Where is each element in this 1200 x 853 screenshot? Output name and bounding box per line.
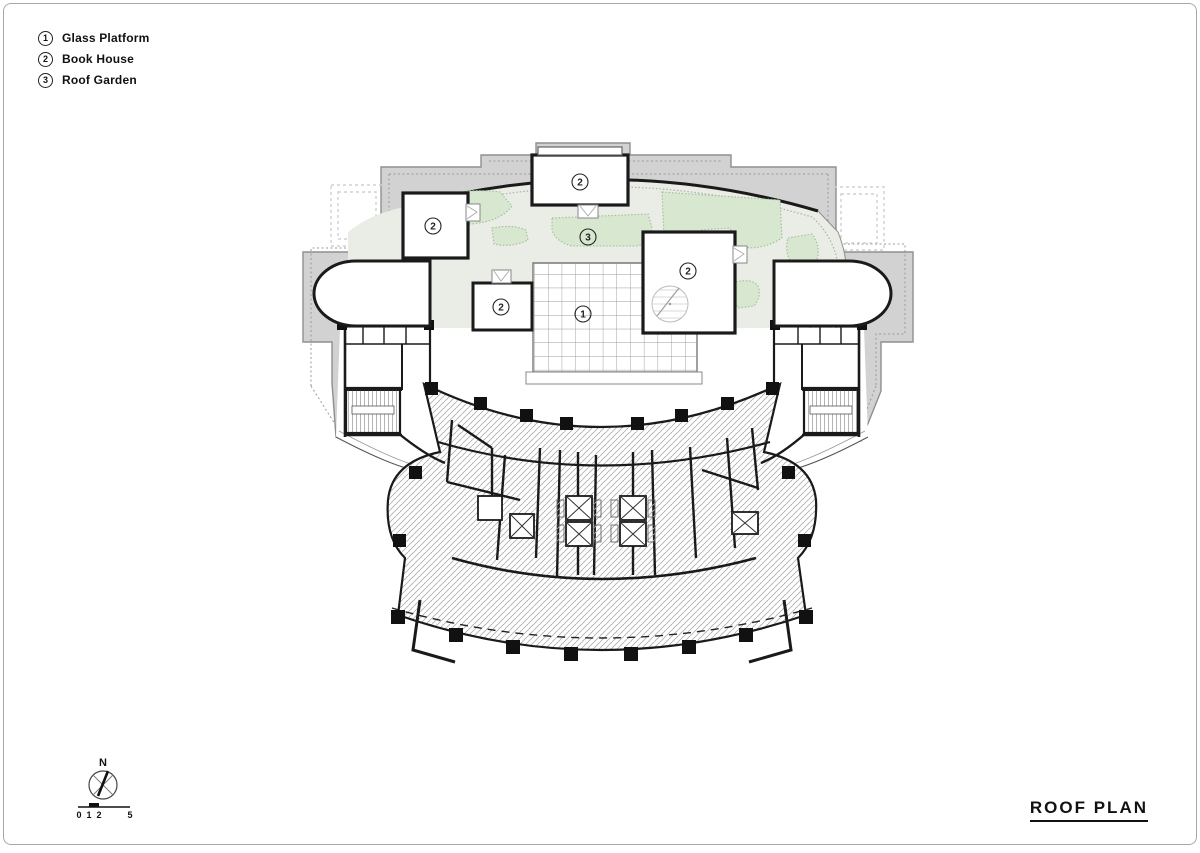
scale-tick-1: 1	[86, 810, 91, 820]
scale-bar: 0 1 2 5	[76, 803, 132, 820]
roof-plan-sheet: { "page": { "title": "ROOF PLAN" }, "leg…	[0, 0, 1200, 848]
legend-label: Glass Platform	[62, 31, 150, 45]
book-house-right	[643, 232, 747, 333]
scale-tick-2: 2	[96, 810, 101, 820]
room-label-number: 3	[585, 233, 591, 244]
north-label: N	[99, 757, 107, 769]
legend-item-roof-garden: 3 Roof Garden	[38, 72, 150, 88]
legend-number-3-icon: 3	[38, 73, 53, 88]
room-label-number: 2	[498, 303, 504, 314]
legend-label: Roof Garden	[62, 73, 137, 87]
room-label-number: 1	[580, 310, 586, 321]
scale-tick-0: 0	[76, 810, 81, 820]
drawing-title-block: ROOF PLAN	[1030, 798, 1148, 818]
north-compass: N	[89, 757, 117, 799]
legend-number-1-icon: 1	[38, 31, 53, 46]
d-room-left	[314, 261, 430, 326]
legend-number-2-icon: 2	[38, 52, 53, 67]
legend-label: Book House	[62, 52, 134, 66]
room-label-number: 2	[685, 267, 691, 278]
legend-item-book-house: 2 Book House	[38, 51, 150, 67]
drawing-title: ROOF PLAN	[1030, 798, 1148, 822]
legend: 1 Glass Platform 2 Book House 3 Roof Gar…	[38, 30, 150, 93]
roof-plan-drawing: 122223 N 0 1 2 5	[0, 0, 1200, 848]
scale-tick-5: 5	[127, 810, 132, 820]
d-room-right	[774, 261, 891, 326]
room-label-number: 2	[577, 178, 583, 189]
legend-item-glass-platform: 1 Glass Platform	[38, 30, 150, 46]
room-label-number: 2	[430, 222, 436, 233]
